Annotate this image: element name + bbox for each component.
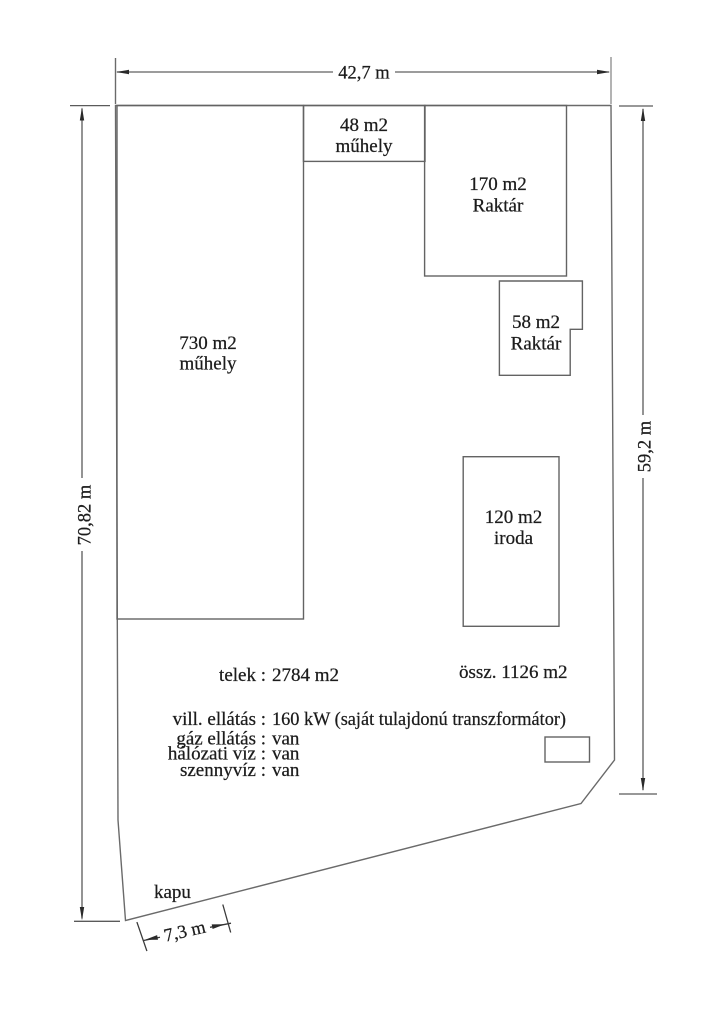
svg-text:szennyvíz :: szennyvíz : <box>180 760 266 781</box>
svg-text:160 kW (saját tulajdonú transz: 160 kW (saját tulajdonú transzformátor) <box>272 709 566 730</box>
svg-text:170 m2: 170 m2 <box>469 174 527 195</box>
svg-text:kapu: kapu <box>154 882 191 903</box>
svg-text:730 m2: 730 m2 <box>179 333 237 354</box>
svg-text:2784 m2: 2784 m2 <box>272 665 339 686</box>
svg-text:48 m2: 48 m2 <box>340 115 388 136</box>
svg-text:iroda: iroda <box>494 528 534 549</box>
svg-text:59,2 m: 59,2 m <box>636 420 656 472</box>
svg-text:58 m2: 58 m2 <box>512 312 560 333</box>
svg-text:42,7 m: 42,7 m <box>338 64 390 84</box>
svg-text:vill. ellátás :: vill. ellátás : <box>173 709 266 730</box>
svg-text:műhely: műhely <box>336 136 393 157</box>
svg-text:Raktár: Raktár <box>473 196 524 217</box>
svg-text:össz. 1126 m2: össz. 1126 m2 <box>459 662 568 683</box>
svg-text:70,82 m: 70,82 m <box>76 484 96 545</box>
svg-text:telek :: telek : <box>219 665 266 686</box>
svg-text:Raktár: Raktár <box>511 334 562 355</box>
svg-text:van: van <box>272 760 300 781</box>
svg-text:műhely: műhely <box>180 354 237 375</box>
svg-text:120 m2: 120 m2 <box>485 507 543 528</box>
